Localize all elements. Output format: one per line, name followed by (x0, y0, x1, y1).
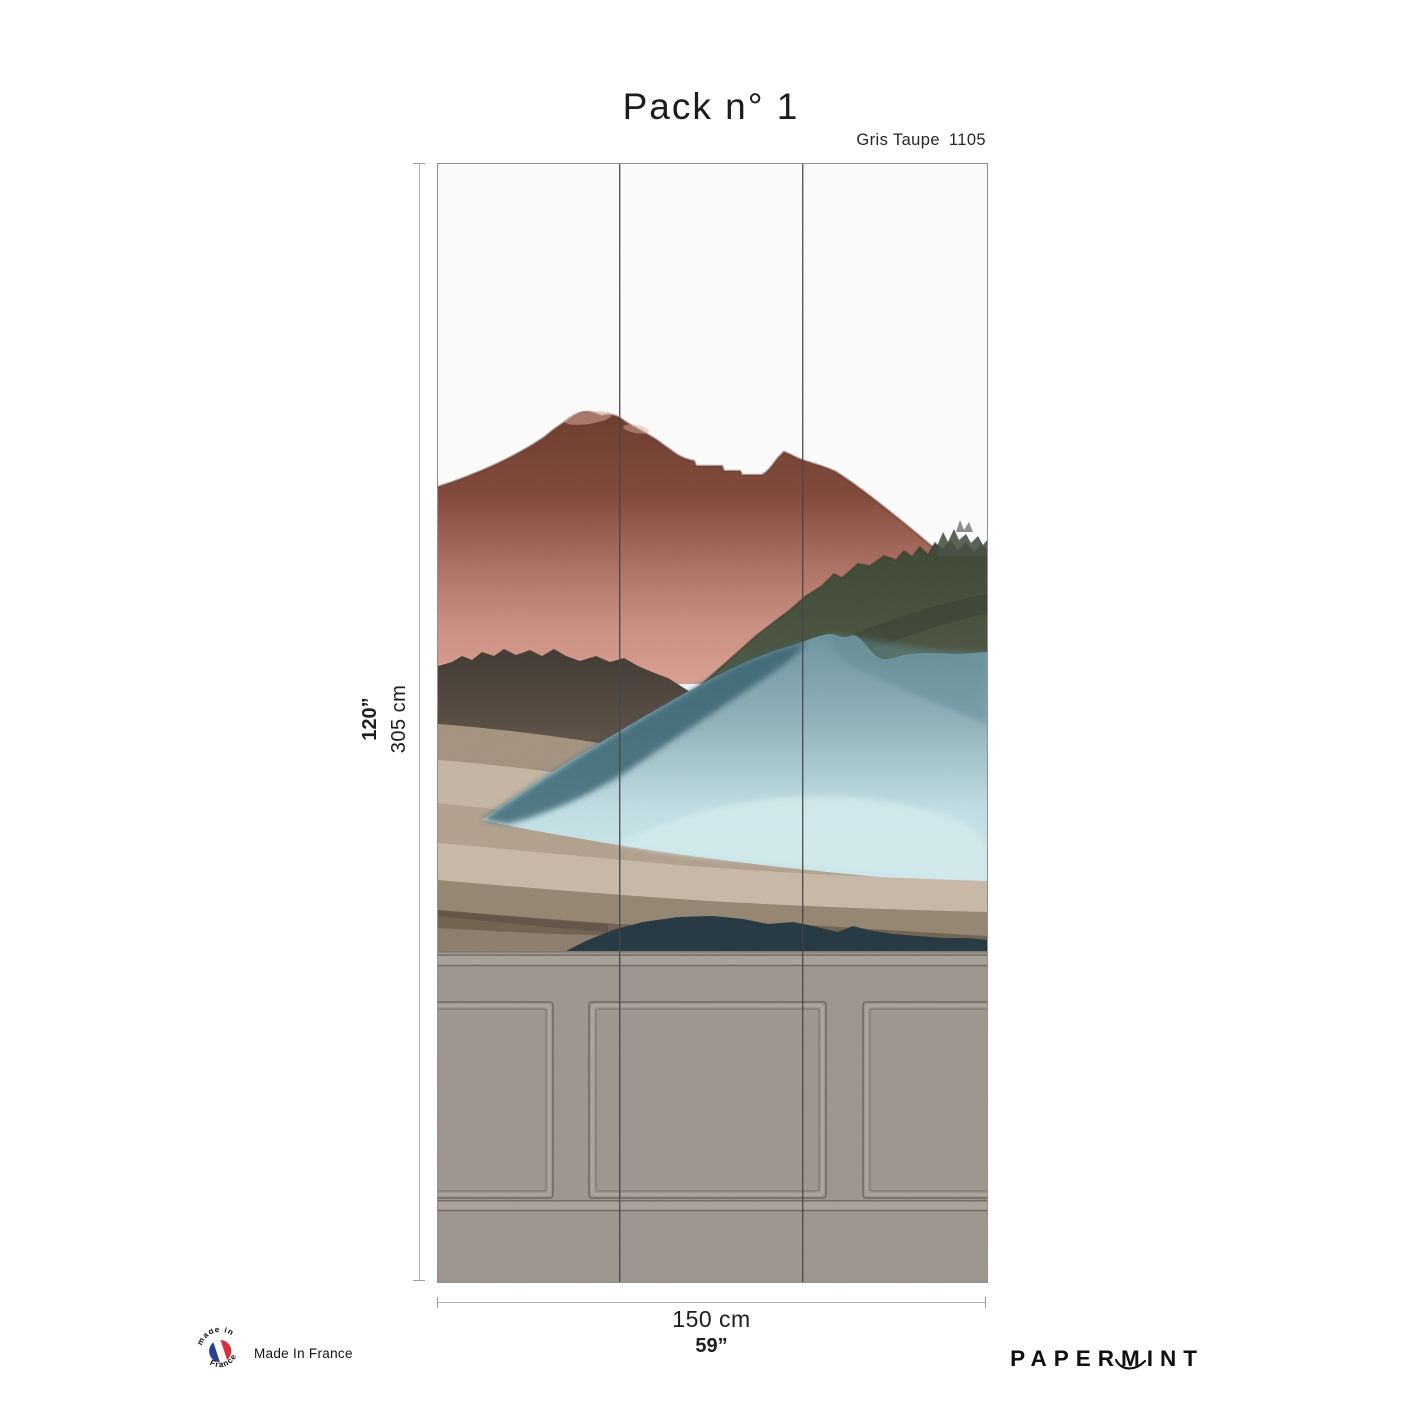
height-dimension-tick-bottom (413, 1280, 425, 1281)
height-dimension-tick-top (413, 163, 425, 164)
colorway-code: 1105 (949, 131, 986, 149)
papermint-logotype: PAPERMINT (948, 1340, 1208, 1376)
height-dimension-line (419, 164, 420, 1281)
strip-divider-2 (802, 164, 803, 1282)
french-flag-icon: made in France (190, 1321, 250, 1381)
strip-divider-1 (619, 164, 620, 1282)
wallpaper-panel (437, 163, 988, 1283)
made-in-france-label: Made In France (254, 1346, 353, 1361)
made-in-france-badge: made in France (190, 1321, 252, 1386)
wallpaper-mural (438, 164, 987, 1282)
brand-logo: PAPERMINT (948, 1340, 1208, 1381)
height-dimension-labels: 120” 305 cm (356, 685, 414, 754)
colorway-name: Gris Taupe (856, 131, 940, 149)
colorway-label: Gris Taupe1105 (437, 131, 986, 150)
width-dimension-labels: 150 cm 59” (437, 1306, 986, 1358)
brand-name: PAPERMINT (1010, 1346, 1204, 1371)
height-label-inches: 120” (356, 685, 385, 754)
paper-grain (438, 164, 987, 1282)
width-label-cm: 150 cm (437, 1306, 986, 1334)
spec-sheet: Pack n° 1 Gris Taupe1105 (0, 0, 1422, 1422)
page-title: Pack n° 1 (0, 86, 1422, 128)
height-label-cm: 305 cm (385, 685, 414, 754)
width-dimension-line (437, 1302, 986, 1303)
width-label-inches: 59” (437, 1334, 986, 1358)
